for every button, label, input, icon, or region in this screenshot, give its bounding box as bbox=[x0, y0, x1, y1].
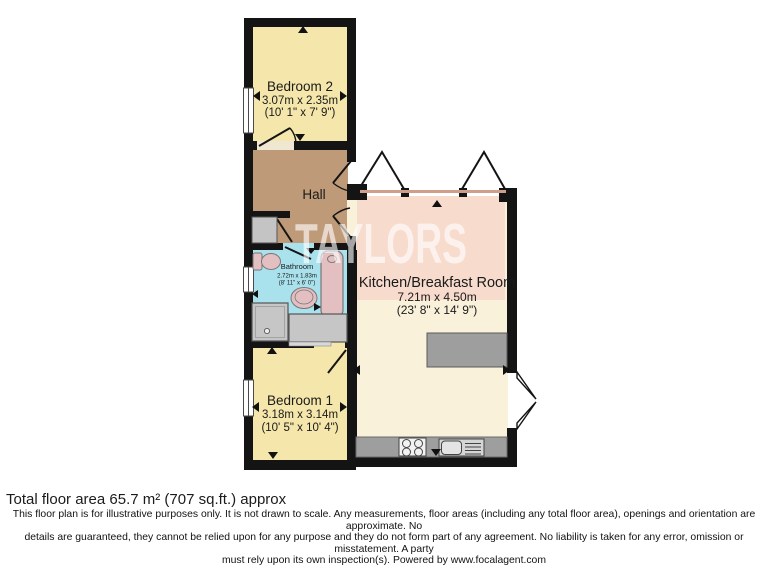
bathroom-dims-m: 2.72m x 1.83m bbox=[277, 274, 317, 280]
hob-ring-4 bbox=[415, 448, 423, 456]
footer: Total floor area 65.7 m² (707 sq.ft.) ap… bbox=[0, 489, 768, 567]
floorplan-drawing: TAYLORS Bedroom 2 3.07m x 2.35m (10' 1" … bbox=[0, 0, 768, 490]
floorplan-page: TAYLORS Bedroom 2 3.07m x 2.35m (10' 1" … bbox=[0, 0, 768, 576]
bedroom1-bottom-wall bbox=[244, 460, 356, 470]
toilet-cistern bbox=[253, 253, 262, 270]
kitchen-french-door-left bbox=[359, 152, 404, 189]
kitchen-french-door-right bbox=[462, 152, 505, 189]
kitchen-glazed-sill bbox=[360, 190, 506, 193]
shower-tray bbox=[252, 303, 288, 341]
bedroom2-right-wall bbox=[347, 18, 356, 150]
bedroom1-dims-ft: (10' 5" x 10' 4") bbox=[261, 422, 338, 434]
bedroom2-door-gap bbox=[257, 141, 294, 150]
hall-right-wall-upper bbox=[347, 150, 356, 162]
airing-cupboard-step bbox=[289, 342, 331, 346]
bedroom2-label: Bedroom 2 bbox=[267, 79, 333, 94]
total-floor-area: Total floor area 65.7 m² (707 sq.ft.) ap… bbox=[6, 491, 768, 508]
hob-ring-3 bbox=[403, 448, 411, 456]
bathroom-dims-ft: (8' 11" x 6' 0") bbox=[279, 281, 315, 287]
disclaimer-line-3: must rely upon its own inspection(s). Po… bbox=[0, 555, 768, 567]
bedroom2-top-wall bbox=[244, 18, 356, 27]
toilet-bowl bbox=[262, 254, 281, 270]
hall-label: Hall bbox=[302, 187, 325, 202]
bedroom1-dims-m: 3.18m x 3.14m bbox=[262, 409, 338, 421]
bedroom2-dims-m: 3.07m x 2.35m bbox=[262, 95, 338, 107]
hob-ring-2 bbox=[415, 440, 423, 448]
hob-ring-1 bbox=[403, 440, 411, 448]
kitchen-side-door-leaf-top bbox=[517, 372, 536, 399]
kitchen-dims-ft: (23' 8" x 14' 9") bbox=[397, 303, 477, 317]
bedroom2-dims-ft: (10' 1" x 7' 9") bbox=[265, 107, 336, 119]
disclaimer-line-2: details are guaranteed, they cannot be r… bbox=[0, 532, 768, 555]
disclaimer-line-1: This floor plan is for illustrative purp… bbox=[0, 509, 768, 532]
kitchen-side-door-leaf-bottom bbox=[517, 402, 536, 429]
hall-cupboard bbox=[252, 217, 277, 243]
kitchen-label: Kitchen/Breakfast Room bbox=[359, 275, 515, 291]
airing-cupboard bbox=[289, 314, 347, 342]
agency-watermark: TAYLORS bbox=[295, 212, 467, 276]
kitchen-left-wall bbox=[347, 250, 357, 467]
kitchen-bottom-wall bbox=[347, 457, 517, 467]
kitchen-island bbox=[427, 333, 507, 367]
bedroom1-label: Bedroom 1 bbox=[267, 393, 333, 408]
kitchen-sink-basin bbox=[442, 441, 462, 455]
kitchen-dims-m: 7.21m x 4.50m bbox=[397, 290, 476, 304]
bathroom-label: Bathroom bbox=[281, 262, 314, 271]
shower-drain bbox=[264, 328, 269, 333]
kitchen-right-wall-lower bbox=[507, 428, 517, 467]
